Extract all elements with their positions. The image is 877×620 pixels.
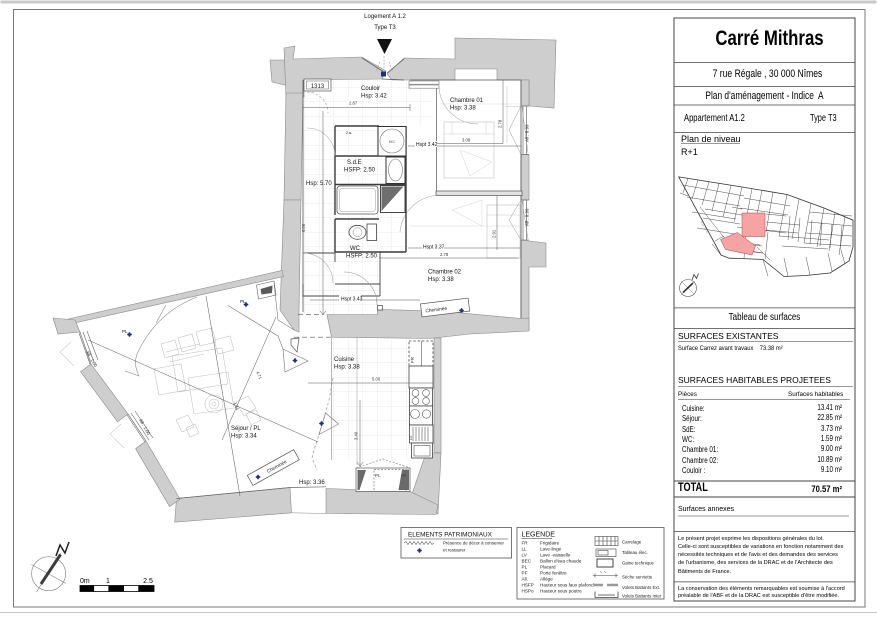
svg-text:Type T3: Type T3	[374, 25, 396, 31]
svg-text:PF: PF	[401, 473, 407, 478]
svg-text:Hsp: 3.38: Hsp: 3.38	[450, 106, 476, 112]
svg-text:Hsp: 3.42: Hsp: 3.42	[361, 94, 387, 100]
svg-text:4.71: 4.71	[255, 370, 263, 380]
svg-text:All : 0.99: All : 0.99	[525, 124, 530, 142]
svg-text:BEC: BEC	[522, 559, 532, 564]
svg-text:Cuisine: Cuisine	[334, 357, 355, 363]
svg-text:LL: LL	[522, 547, 528, 552]
svg-text:Couloir: Couloir	[361, 86, 380, 92]
svg-text:5.00: 5.00	[372, 377, 381, 382]
svg-text:FR: FR	[522, 541, 529, 546]
svg-text:Sèche serviette: Sèche serviette	[622, 575, 653, 580]
svg-text:3.40: 3.40	[354, 431, 359, 440]
svg-text:S.d.E: S.d.E	[347, 160, 362, 166]
svg-text:Volets Battants Inter: Volets Battants Inter	[622, 594, 662, 599]
svg-text:1313: 1313	[311, 84, 325, 90]
svg-text:HSFP: 2.50: HSFP: 2.50	[346, 254, 378, 260]
svg-text:2.a.: 2.a.	[346, 131, 352, 135]
svg-text:Hspt 3.42: Hspt 3.42	[416, 142, 438, 148]
svg-text:Chambre 01: Chambre 01	[450, 98, 484, 104]
svg-text:2.78: 2.78	[440, 252, 449, 257]
svg-text:ELEMENTS PATRIMONIAUX: ELEMENTS PATRIMONIAUX	[408, 531, 493, 538]
svg-text:LEGENDE: LEGENDE	[522, 532, 556, 539]
svg-text:Hsp: 3.38: Hsp: 3.38	[428, 277, 454, 283]
svg-text:PL: PL	[375, 473, 381, 478]
svg-text:Lave-linge: Lave-linge	[540, 547, 562, 552]
svg-text:Hsp: 3.36: Hsp: 3.36	[299, 480, 325, 486]
svg-text:Frigidaire: Frigidaire	[540, 541, 560, 546]
svg-text:Hsp: 3.38: Hsp: 3.38	[334, 365, 360, 371]
svg-text:Hsp: 3.34: Hsp: 3.34	[231, 434, 257, 440]
svg-text:Hauteur sous faux plafond: Hauteur sous faux plafond	[540, 583, 594, 588]
svg-text:Lave -vaisselle: Lave -vaisselle	[540, 553, 571, 558]
svg-text:Présence de décor à conserver: Présence de décor à conserver	[443, 541, 505, 546]
svg-text:HSFP: 2.50: HSFP: 2.50	[344, 168, 376, 174]
svg-text:Volets Battants Ext.: Volets Battants Ext.	[622, 585, 660, 590]
svg-text:1: 1	[106, 578, 110, 585]
svg-text:4.44: 4.44	[232, 401, 240, 411]
svg-text:PF: PF	[522, 571, 528, 576]
svg-text:PL: PL	[240, 299, 246, 304]
svg-text:PL: PL	[122, 329, 128, 334]
svg-text:All : 0.99: All : 0.99	[525, 208, 530, 226]
svg-text:2.78: 2.78	[498, 119, 503, 128]
svg-text:et restaurer: et restaurer	[443, 548, 466, 553]
svg-text:Gaine technique: Gaine technique	[622, 561, 655, 566]
svg-text:HSFP: HSFP	[522, 583, 534, 588]
svg-text:Chambre 02: Chambre 02	[428, 270, 462, 276]
svg-text:WC: WC	[350, 246, 361, 252]
svg-text:2.5: 2.5	[143, 578, 153, 585]
svg-text:HSPo: HSPo	[522, 589, 534, 594]
svg-text:FR: FR	[410, 356, 415, 363]
svg-text:3.09: 3.09	[462, 138, 471, 143]
svg-text:LV: LV	[408, 435, 413, 440]
svg-text:Allège: Allège	[540, 577, 553, 582]
svg-text:Hspt 3.43: Hspt 3.43	[341, 296, 363, 302]
svg-text:BEC: BEC	[389, 140, 396, 144]
svg-text:Ballon d'eau chaude: Ballon d'eau chaude	[540, 559, 582, 564]
svg-text:Séjour / PL: Séjour / PL	[231, 426, 261, 432]
svg-text:Hspt 3.37: Hspt 3.37	[423, 244, 445, 250]
svg-text:Hauteur sous poutre: Hauteur sous poutre	[540, 589, 582, 594]
svg-text:Placard: Placard	[540, 565, 556, 570]
svg-text:All.: All.	[522, 577, 528, 582]
svg-text:Logement A 1.2: Logement A 1.2	[364, 14, 406, 20]
svg-text:0m: 0m	[80, 578, 90, 585]
svg-text:2.87: 2.87	[349, 101, 358, 106]
svg-text:Porte fenêtre: Porte fenêtre	[540, 571, 567, 576]
svg-text:Tableau élec.: Tableau élec.	[622, 550, 648, 555]
svg-text:6.06: 6.06	[301, 223, 306, 232]
svg-text:Hsp: 5.70: Hsp: 5.70	[306, 181, 332, 187]
svg-text:Carrelage: Carrelage	[622, 540, 642, 545]
svg-text:PL: PL	[522, 565, 528, 570]
svg-text:2.91: 2.91	[492, 229, 497, 238]
